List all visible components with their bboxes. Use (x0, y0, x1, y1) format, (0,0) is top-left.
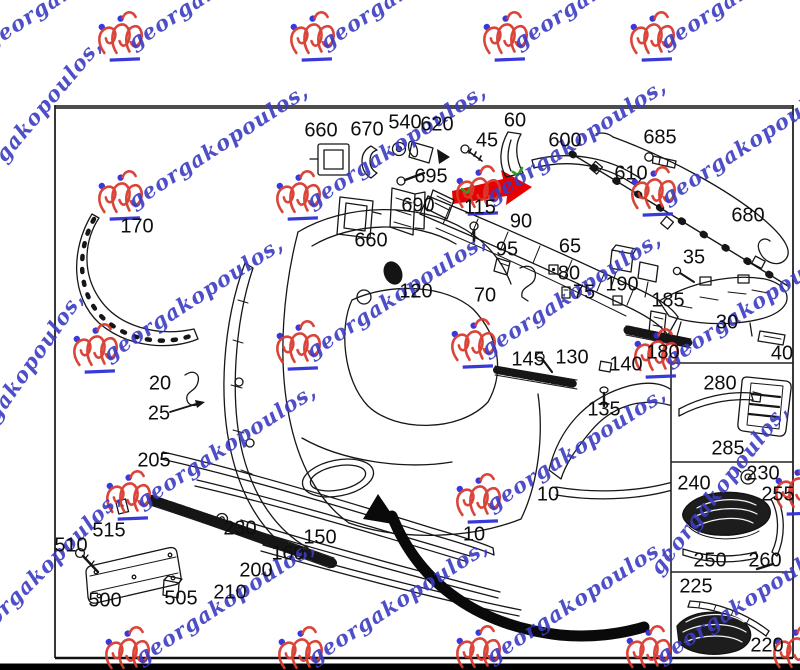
watermark-text: georgakopoulos, (123, 0, 313, 54)
part-label-660: 660 (304, 119, 337, 141)
part-label-505: 505 (164, 587, 197, 609)
part-label-115: 115 (464, 196, 496, 218)
part-label-695: 695 (414, 165, 447, 187)
part-label-65: 65 (559, 235, 581, 257)
part-label-200: 200 (239, 559, 272, 581)
screenshot-bottom-bar (0, 664, 800, 670)
diagram-canvas: georgakopoulos,georgakopoulos,georgakopo… (0, 0, 800, 670)
screw-685 (645, 153, 676, 168)
part-label-140: 140 (609, 353, 642, 375)
part-label-75: 75 (573, 281, 595, 303)
part-label-160: 160 (271, 542, 304, 564)
part-label-205: 205 (137, 449, 170, 471)
part-label-150: 150 (303, 526, 336, 548)
part-label-45: 45 (476, 129, 498, 151)
watermark-text: georgakopoulos, (301, 228, 491, 363)
part-label-500: 500 (88, 589, 121, 611)
part-label-210: 210 (213, 581, 246, 603)
watermark-text: georgakopoulos, (0, 286, 89, 472)
part-label-620: 620 (420, 113, 453, 135)
part-label-180: 180 (646, 341, 679, 363)
part-label-145: 145 (511, 348, 544, 370)
part-label-255: 255 (761, 483, 794, 505)
part-label-90: 90 (510, 210, 532, 232)
part-label-510: 510 (54, 534, 87, 556)
part-label-70: 70 (474, 284, 496, 306)
watermark-text: georgakopoulos, (656, 74, 800, 209)
part-label-170: 170 (120, 215, 153, 237)
part-label-190: 190 (605, 273, 638, 295)
part-label-240: 240 (677, 472, 710, 494)
watermark-text: georgakopoulos, (123, 78, 313, 213)
part-label-690: 690 (401, 194, 434, 216)
part-label-20: 20 (149, 372, 171, 394)
watermark-text: georgakopoulos, (315, 0, 505, 54)
part-label-670: 670 (350, 118, 383, 140)
part-label-260: 260 (748, 549, 781, 571)
part-label-10: 10 (537, 483, 559, 505)
part-label-220: 220 (750, 634, 783, 656)
part-label-130: 130 (555, 346, 588, 368)
part-label-40: 40 (771, 342, 793, 364)
part-label-285: 285 (711, 437, 744, 459)
part-label-250: 250 (693, 549, 726, 571)
fog-lamp-hole (299, 453, 377, 502)
part-label-185: 185 (651, 289, 684, 311)
part-label-230: 230 (746, 462, 779, 484)
parts-diagram-page: georgakopoulos,georgakopoulos,georgakopo… (0, 0, 800, 670)
part-label-30: 30 (716, 311, 738, 333)
part-label-685: 685 (643, 126, 676, 148)
watermark-text: georgakopoulos, (655, 0, 800, 54)
part-label-280: 280 (703, 372, 736, 394)
part-label-60: 60 (504, 109, 526, 131)
part-label-515: 515 (92, 519, 125, 541)
part-label-540: 540 (388, 111, 421, 133)
pointer-swoosh-arrow (363, 494, 644, 636)
watermark-text: georgakopoulos, (98, 231, 288, 366)
part-label-35: 35 (683, 246, 705, 268)
part-label-600: 600 (548, 129, 581, 151)
part-label-610: 610 (614, 162, 647, 184)
watermark-text: georgakopoulos, (0, 33, 107, 210)
screw-35 (673, 267, 694, 282)
part-label-10: 10 (463, 523, 485, 545)
part-label-680: 680 (731, 204, 764, 226)
part-label-135: 135 (587, 398, 620, 420)
part-label-120: 120 (399, 280, 432, 302)
part-label-225: 225 (679, 575, 712, 597)
part-label-660: 660 (354, 229, 387, 251)
part-label-230: 230 (223, 517, 256, 539)
watermark-text: georgakopoulos, (0, 485, 126, 651)
part-label-25: 25 (148, 402, 170, 424)
part-label-95: 95 (496, 238, 518, 260)
